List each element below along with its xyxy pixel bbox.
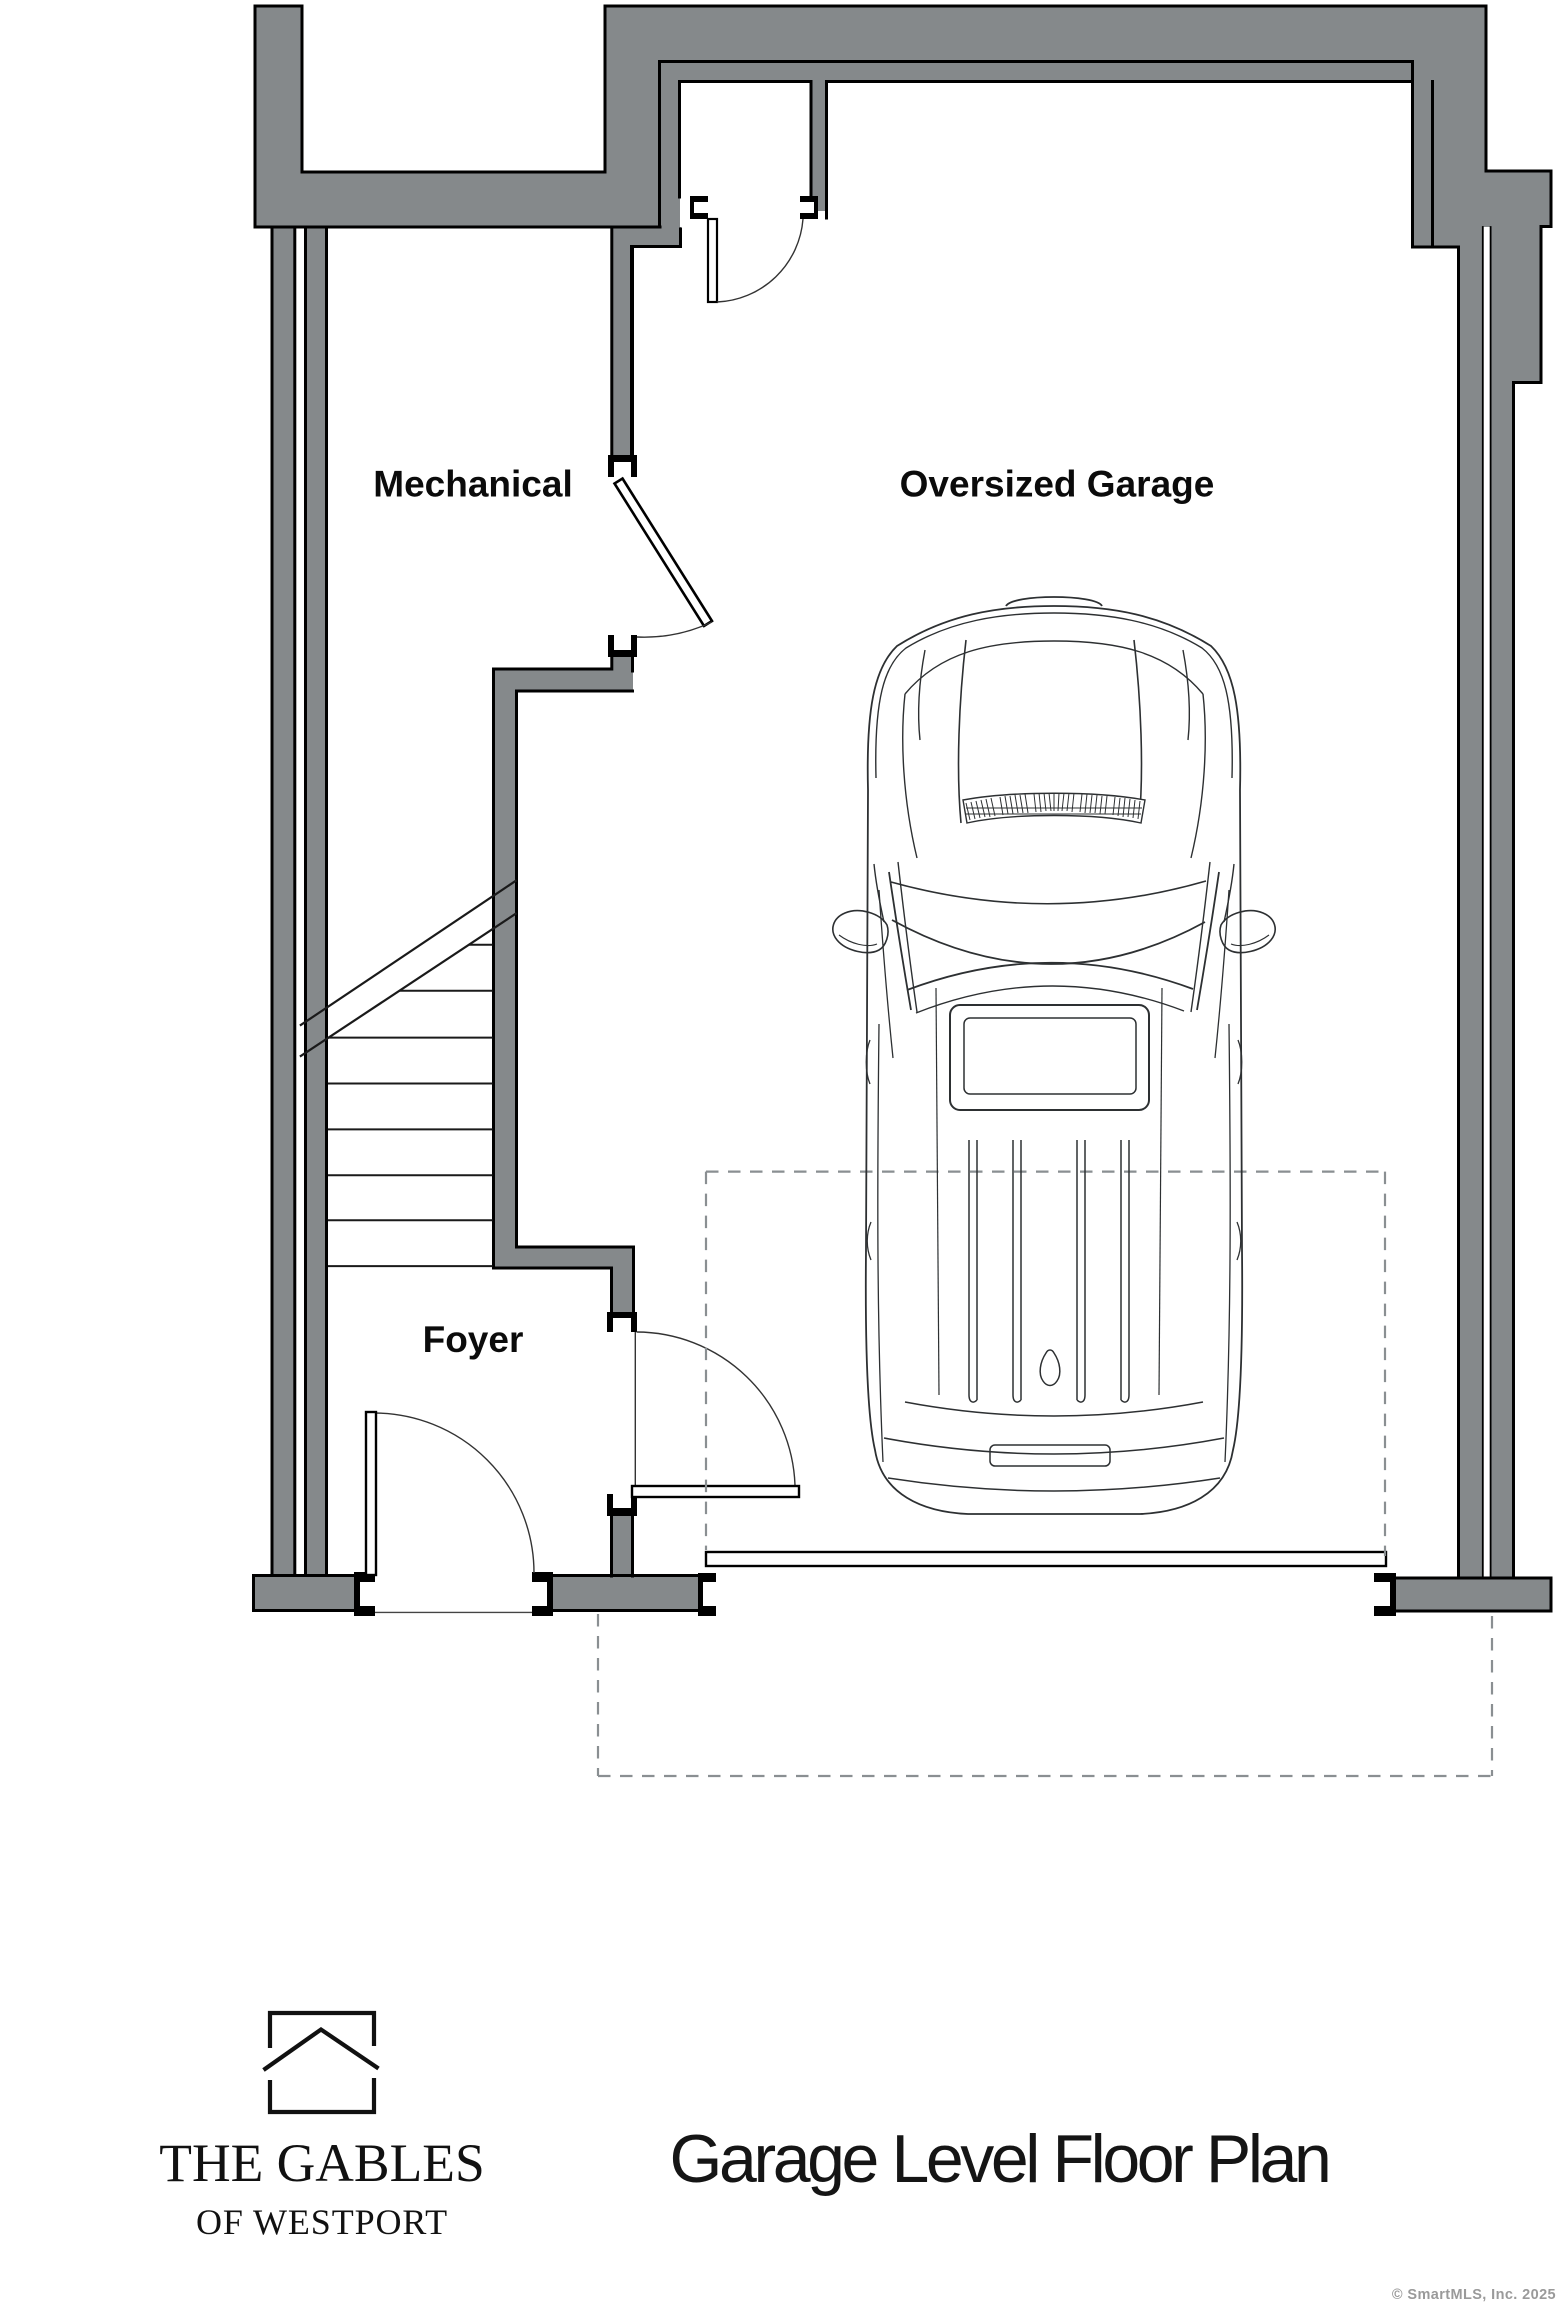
svg-text:THE GABLES: THE GABLES [159, 2133, 484, 2193]
svg-text:Oversized Garage: Oversized Garage [900, 464, 1215, 505]
svg-text:Foyer: Foyer [423, 1319, 524, 1360]
svg-text:OF WESTPORT: OF WESTPORT [196, 2202, 448, 2242]
svg-text:Mechanical: Mechanical [373, 464, 572, 505]
svg-text:Garage Level Floor Plan: Garage Level Floor Plan [670, 2121, 1329, 2197]
svg-text:© SmartMLS, Inc. 2025: © SmartMLS, Inc. 2025 [1392, 2287, 1556, 2303]
